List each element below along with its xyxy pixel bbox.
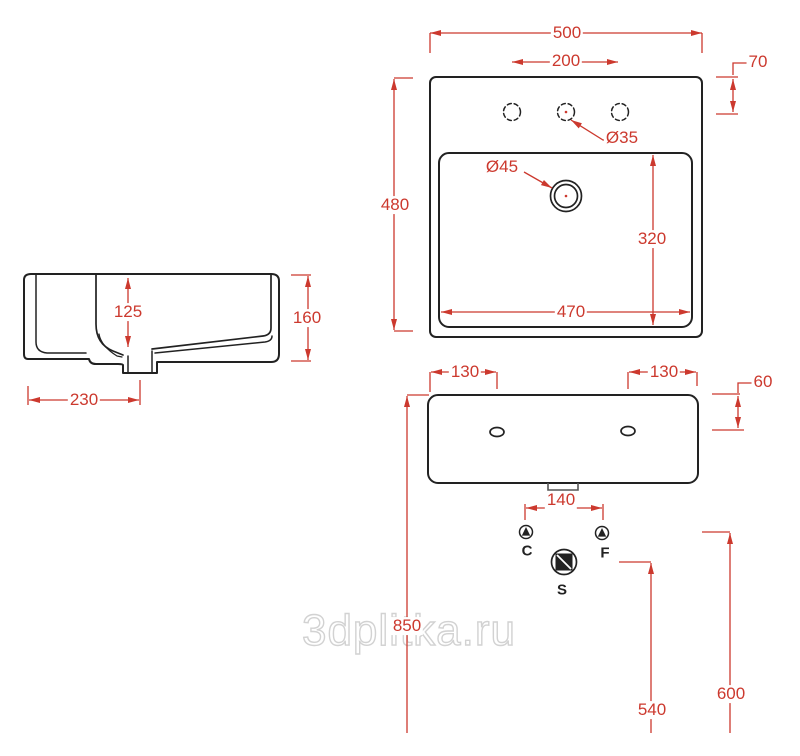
connection-symbols (520, 526, 609, 575)
dim-basin-width: 320 (636, 230, 668, 248)
top-view (430, 77, 702, 337)
faucet-hole-left (504, 104, 521, 121)
side-view (24, 274, 279, 373)
dim-basin-depth: 125 (112, 303, 144, 321)
front-drain-tab (548, 483, 578, 490)
drain-center-mark (565, 195, 568, 198)
front-view-outline (428, 395, 698, 483)
dim-faucet-hole-diameter: Ø35 (604, 129, 640, 147)
faucet-hole-right (612, 104, 629, 121)
dim-mount-hole-left: 130 (449, 363, 481, 381)
sink-technical-drawing: 3dplitka.ru (0, 0, 800, 756)
dim-supply-spacing: 140 (545, 491, 577, 509)
dim-basin-length: 470 (555, 303, 587, 321)
mount-hole-right (621, 427, 635, 436)
side-basin-slope-bottom (155, 336, 272, 353)
hot-water-label: F (600, 546, 609, 561)
dim-supply-height: 600 (715, 685, 747, 703)
side-shell-inner-left (36, 274, 86, 353)
dim-rim-height: 850 (391, 617, 423, 635)
dim-drain-diameter: Ø45 (484, 158, 520, 176)
front-view (428, 395, 698, 490)
hole-center-mark (565, 111, 568, 114)
dim-waste-height: 540 (636, 701, 668, 719)
dim-mount-hole-top: 60 (752, 373, 775, 391)
dim-overall-height: 160 (291, 309, 323, 327)
hot-water-triangle (598, 528, 606, 537)
cold-water-triangle (522, 527, 530, 536)
dim-mount-hole-right: 130 (648, 363, 680, 381)
waste-label: S (557, 583, 567, 598)
dim-faucet-hole-offset: 70 (747, 53, 770, 71)
dim-overall-width: 500 (551, 24, 583, 42)
dim-faucet-hole-spacing: 200 (550, 52, 582, 70)
dim-overall-depth: 480 (379, 196, 411, 214)
dim-drain-position: 230 (68, 391, 100, 409)
side-basin-slope-top (152, 274, 271, 349)
mount-hole-left (490, 428, 504, 437)
cold-water-label: C (522, 544, 533, 559)
